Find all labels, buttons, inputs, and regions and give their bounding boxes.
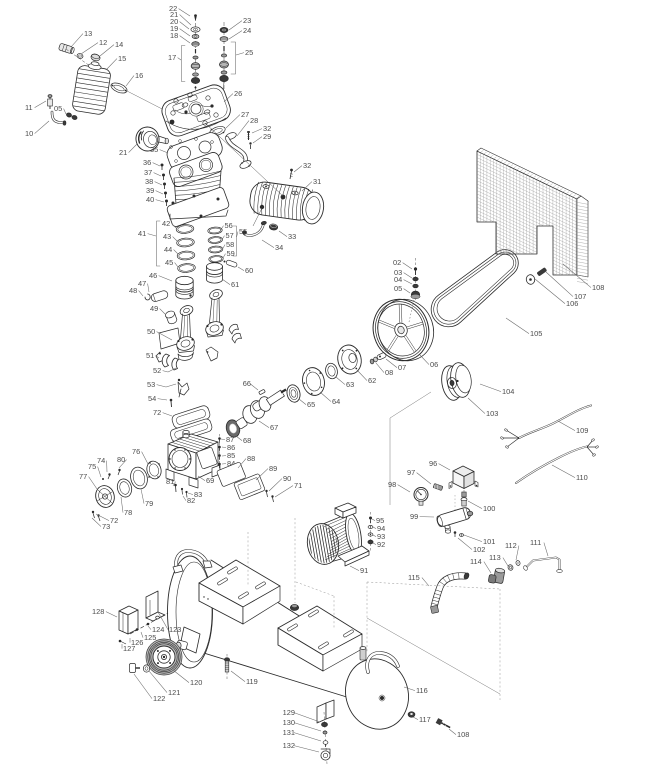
svg-text:103: 103 (486, 409, 498, 418)
svg-text:129: 129 (283, 708, 295, 717)
svg-text:62: 62 (368, 376, 376, 385)
svg-text:61: 61 (231, 280, 239, 289)
svg-text:08: 08 (385, 368, 393, 377)
svg-text:109: 109 (576, 426, 588, 435)
svg-text:113: 113 (489, 553, 501, 562)
svg-text:78: 78 (124, 508, 132, 517)
svg-text:41: 41 (138, 229, 146, 238)
svg-text:125: 125 (144, 633, 156, 642)
svg-text:13: 13 (84, 29, 92, 38)
svg-text:63: 63 (346, 380, 354, 389)
svg-text:74: 74 (97, 456, 105, 465)
svg-text:92: 92 (377, 540, 385, 549)
svg-text:04: 04 (394, 275, 402, 284)
svg-text:47: 47 (138, 279, 146, 288)
svg-text:26: 26 (234, 89, 242, 98)
svg-text:110: 110 (576, 473, 588, 482)
svg-text:106: 106 (566, 299, 578, 308)
svg-text:55: 55 (239, 227, 247, 236)
svg-text:37: 37 (144, 168, 152, 177)
svg-text:05: 05 (394, 284, 402, 293)
svg-text:117: 117 (419, 715, 431, 724)
svg-text:122: 122 (153, 694, 165, 703)
svg-text:02: 02 (393, 258, 401, 267)
svg-text:46: 46 (149, 271, 157, 280)
svg-text:90: 90 (283, 474, 291, 483)
svg-text:48: 48 (129, 286, 137, 295)
svg-text:42: 42 (162, 219, 170, 228)
svg-text:112: 112 (505, 541, 517, 550)
svg-text:44: 44 (164, 245, 172, 254)
svg-text:128: 128 (92, 607, 104, 616)
svg-text:40: 40 (146, 195, 154, 204)
svg-text:68: 68 (243, 436, 251, 445)
svg-text:21: 21 (119, 148, 127, 157)
svg-text:100: 100 (483, 504, 495, 513)
svg-text:83: 83 (194, 490, 202, 499)
svg-text:39: 39 (146, 186, 154, 195)
svg-text:108: 108 (457, 730, 469, 739)
svg-text:43: 43 (163, 232, 171, 241)
svg-text:07: 07 (398, 363, 406, 372)
svg-text:71: 71 (294, 481, 302, 490)
svg-text:82: 82 (187, 496, 195, 505)
svg-text:88: 88 (247, 454, 255, 463)
svg-text:65: 65 (307, 400, 315, 409)
svg-text:05: 05 (54, 104, 62, 113)
svg-text:54: 54 (148, 394, 156, 403)
svg-text:16: 16 (135, 71, 143, 80)
svg-text:24: 24 (243, 26, 251, 35)
svg-text:12: 12 (99, 38, 107, 47)
svg-text:50: 50 (147, 327, 155, 336)
svg-text:131: 131 (283, 728, 295, 737)
svg-text:75: 75 (88, 462, 96, 471)
svg-text:91: 91 (360, 566, 368, 575)
svg-text:23: 23 (243, 16, 251, 25)
svg-text:10: 10 (25, 129, 33, 138)
svg-text:33: 33 (288, 232, 296, 241)
svg-text:115: 115 (408, 573, 420, 582)
svg-text:38: 38 (145, 177, 153, 186)
svg-text:59: 59 (227, 249, 235, 258)
svg-text:53: 53 (147, 380, 155, 389)
svg-text:81: 81 (166, 477, 174, 486)
svg-text:58: 58 (226, 240, 234, 249)
svg-text:28: 28 (250, 116, 258, 125)
svg-text:36: 36 (143, 158, 151, 167)
svg-text:111: 111 (530, 538, 541, 547)
svg-text:06: 06 (430, 360, 438, 369)
svg-text:11: 11 (25, 103, 33, 112)
svg-text:72: 72 (110, 516, 118, 525)
svg-text:25: 25 (245, 48, 253, 57)
svg-text:34: 34 (275, 243, 283, 252)
svg-text:130: 130 (283, 718, 295, 727)
svg-text:79: 79 (145, 499, 153, 508)
svg-text:35: 35 (150, 145, 158, 154)
svg-text:116: 116 (416, 686, 428, 695)
svg-text:51: 51 (146, 351, 154, 360)
svg-text:56: 56 (225, 221, 233, 230)
svg-text:119: 119 (246, 677, 258, 686)
svg-text:60: 60 (245, 266, 253, 275)
svg-text:31: 31 (313, 177, 321, 186)
svg-text:132: 132 (283, 741, 295, 750)
svg-text:64: 64 (332, 397, 340, 406)
svg-text:32: 32 (303, 161, 311, 170)
svg-text:98: 98 (388, 480, 396, 489)
svg-text:45: 45 (165, 258, 173, 267)
svg-text:29: 29 (263, 132, 271, 141)
svg-text:105: 105 (530, 329, 542, 338)
svg-text:57: 57 (226, 231, 234, 240)
svg-text:102: 102 (473, 545, 485, 554)
svg-text:96: 96 (429, 459, 437, 468)
svg-text:120: 120 (190, 678, 202, 687)
svg-text:69: 69 (206, 476, 214, 485)
svg-text:17: 17 (168, 53, 176, 62)
svg-text:49: 49 (150, 304, 158, 313)
svg-text:127: 127 (123, 644, 135, 653)
svg-text:108: 108 (592, 283, 604, 292)
svg-text:76: 76 (132, 447, 140, 456)
svg-text:97: 97 (407, 468, 415, 477)
svg-text:104: 104 (502, 387, 514, 396)
svg-text:99: 99 (410, 512, 418, 521)
svg-text:18: 18 (170, 31, 178, 40)
svg-text:121: 121 (168, 688, 180, 697)
svg-text:15: 15 (118, 54, 126, 63)
svg-text:66: 66 (243, 379, 251, 388)
svg-text:73: 73 (102, 522, 110, 531)
svg-text:14: 14 (115, 40, 123, 49)
svg-text:67: 67 (270, 423, 278, 432)
svg-text:72: 72 (153, 408, 161, 417)
svg-text:77: 77 (79, 472, 87, 481)
svg-text:89: 89 (269, 464, 277, 473)
svg-text:52: 52 (153, 366, 161, 375)
svg-text:27: 27 (241, 110, 249, 119)
svg-text:114: 114 (470, 557, 482, 566)
svg-text:123: 123 (169, 625, 181, 634)
